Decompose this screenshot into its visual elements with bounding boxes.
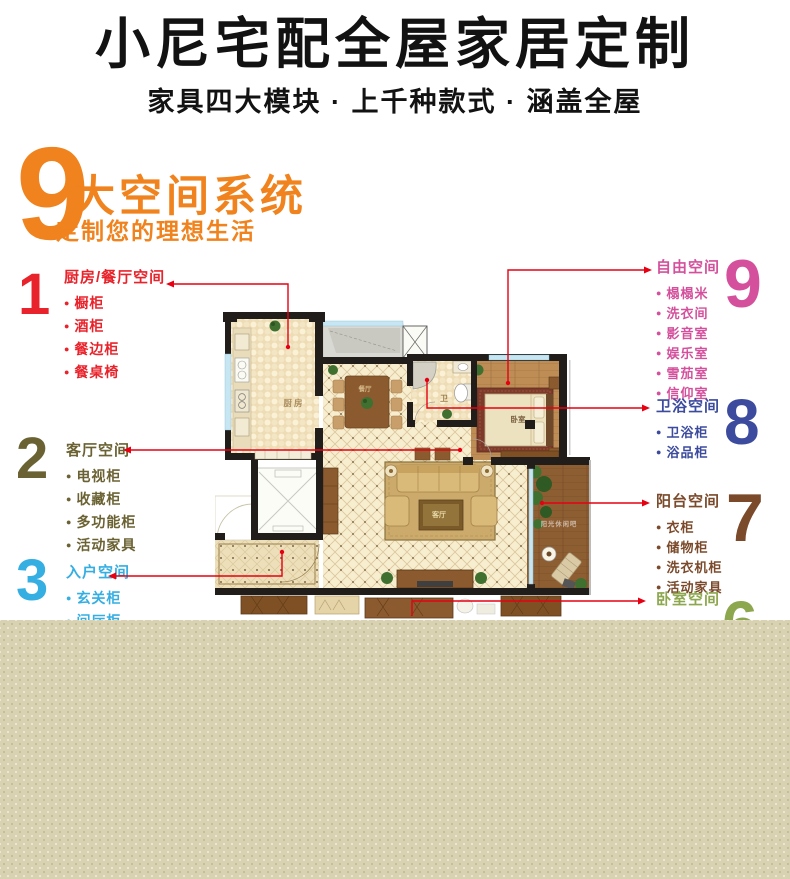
space-feature-list: 电视柜收藏柜多功能柜活动家具 — [66, 466, 236, 555]
plant — [328, 365, 338, 375]
bottom-texture-band — [0, 620, 790, 879]
feature-item: 餐桌椅 — [64, 362, 234, 382]
dining-label: 餐厅 — [358, 384, 373, 393]
feature-item: 娱乐室 — [656, 343, 776, 362]
bench — [241, 596, 307, 614]
feature-item: 橱柜 — [64, 293, 234, 313]
page-subtitle: 家具四大模块 · 上千种款式 · 涵盖全屋 — [0, 80, 790, 119]
plant — [540, 506, 552, 518]
dining-chair — [333, 416, 344, 429]
hall-cabinet — [323, 468, 338, 534]
feature-item: 收藏柜 — [66, 489, 236, 509]
bedroom-label: 卧室 — [511, 414, 526, 424]
space-number: 9 — [724, 250, 762, 318]
space-bathroom: 8 卫浴空间 卫浴柜浴品柜 — [656, 395, 776, 462]
space-title: 卧室空间 — [656, 588, 776, 609]
plant — [536, 476, 552, 492]
plant — [381, 572, 393, 584]
balcony-label: 阳光休闲吧 — [541, 519, 577, 528]
bath-sink — [458, 364, 468, 371]
feature-item: 餐边柜 — [64, 339, 234, 359]
dining-chair — [391, 416, 402, 429]
tv — [417, 581, 453, 587]
feature-item: 电视柜 — [66, 466, 236, 486]
space-kitchen-dining: 1 厨房/餐厅空间 橱柜酒柜餐边柜餐桌椅 — [18, 266, 234, 385]
space-number: 8 — [724, 390, 760, 454]
bath-label: 卫 — [440, 394, 448, 403]
space-number: 1 — [18, 266, 50, 324]
dining-chair — [333, 380, 344, 393]
feature-item: 玄关柜 — [66, 588, 236, 608]
pillow — [534, 422, 544, 443]
space-number: 3 — [16, 552, 48, 610]
hero-subline: 定制您的理想生活 — [56, 212, 256, 246]
plant — [475, 572, 487, 584]
kitchen-label: 厨房 — [283, 398, 304, 408]
dining-chair — [333, 398, 344, 411]
headboard — [546, 394, 553, 446]
poster-page: { "header": { "title": "小尼宅配全屋家居定制", "su… — [0, 0, 790, 879]
kitchen-sink — [235, 358, 249, 382]
feature-item: 洗衣机柜 — [656, 557, 776, 576]
space-free: 9 自由空间 榻榻米洗衣间影音室娱乐室雪茄室信仰室 — [656, 256, 776, 403]
feature-item: 雪茄室 — [656, 363, 776, 382]
space-number: 7 — [726, 484, 764, 552]
space-feature-list: 橱柜酒柜餐边柜餐桌椅 — [64, 293, 234, 382]
armchair — [385, 496, 409, 526]
armchair — [471, 496, 497, 526]
living-label: 客厅 — [431, 510, 446, 519]
page-title: 小尼宅配全屋家居定制 — [0, 14, 790, 75]
stool — [415, 448, 430, 460]
stool — [435, 448, 450, 460]
bench — [501, 596, 561, 616]
feature-item: 酒柜 — [64, 316, 234, 336]
plant — [270, 321, 281, 332]
pillow — [534, 397, 544, 418]
dining-chair — [391, 398, 402, 411]
window-glass — [323, 321, 403, 326]
plant — [442, 409, 452, 419]
space-title: 客厅空间 — [66, 439, 236, 460]
space-title: 厨房/餐厅空间 — [64, 266, 234, 287]
plant — [361, 397, 373, 409]
header: 小尼宅配全屋家居定制 家具四大模块 · 上千种款式 · 涵盖全屋 — [0, 0, 790, 119]
space-balcony: 7 阳台空间 衣柜储物柜洗衣机柜活动家具 — [656, 490, 776, 597]
feature-item: 影音室 — [656, 323, 776, 342]
dining-chair — [391, 380, 402, 393]
space-number: 2 — [16, 430, 48, 488]
space-bedroom: 6 卧室空间 — [656, 588, 776, 615]
space-living: 2 客厅空间 电视柜收藏柜多功能柜活动家具 — [16, 430, 236, 558]
space-title: 入户空间 — [66, 561, 236, 582]
feature-item: 多功能柜 — [66, 512, 236, 532]
floor-plan: 厨房 餐厅 卫 卧室 客厅 阳光休闲吧 — [215, 300, 645, 625]
toilet — [455, 384, 468, 402]
